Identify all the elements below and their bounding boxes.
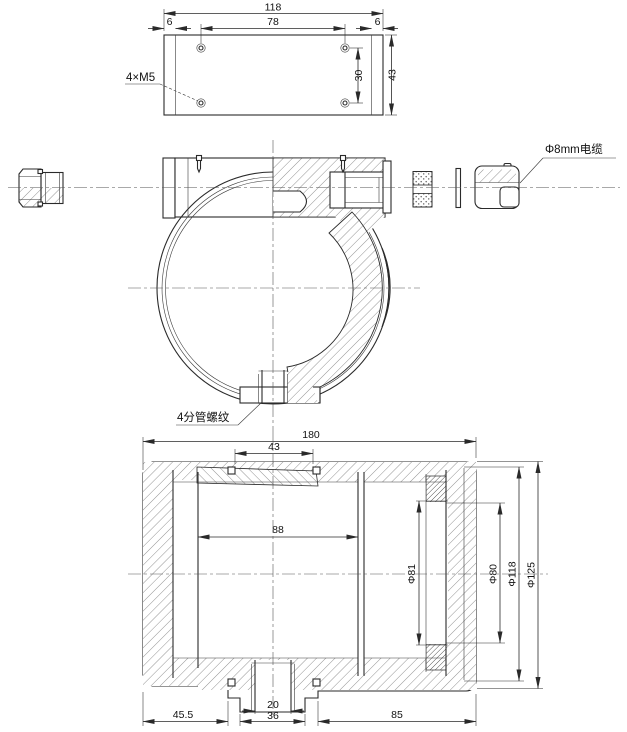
o-ring	[228, 679, 235, 686]
side-port	[382, 248, 390, 327]
gland-washer	[456, 169, 461, 208]
o-ring	[228, 467, 235, 474]
dim-hole-pitch-h: 78	[267, 16, 279, 28]
dim-edge-left: 6	[167, 16, 173, 28]
cable-entry-thread	[330, 172, 385, 208]
inner-tongue	[273, 191, 307, 212]
engineering-drawing-page: 118 78 6 6 43 30 4×M5	[0, 0, 627, 732]
flange-edge	[163, 158, 175, 218]
gland-nut	[475, 164, 519, 209]
section-wall-crescent	[287, 212, 382, 396]
front-view-housing: Φ8mm电缆 4分管螺纹	[8, 140, 620, 432]
label-cable: Φ8mm电缆	[545, 143, 603, 156]
hex-plug	[19, 169, 63, 207]
dim-dia-125: Φ125	[526, 562, 538, 588]
dim-hole-pitch-v: 30	[353, 70, 365, 82]
dim-overall-height: 43	[387, 69, 399, 81]
dim-inner-cavity: 88	[272, 524, 284, 536]
gland-seat-ring	[383, 161, 391, 213]
label-tapped-holes: 4×M5	[126, 72, 155, 84]
section-view-housing: 180 43 88 Φ81 Φ80 Φ118 Φ125 45.5	[128, 429, 548, 726]
o-ring	[313, 679, 320, 686]
top-view-mounting-plate: 118 78 6 6 43 30 4×M5	[125, 2, 399, 116]
o-ring	[313, 467, 320, 474]
dim-top-slot: 43	[268, 441, 280, 453]
dim-edge-right: 6	[375, 16, 381, 28]
label-pipe-thread: 4分管螺纹	[177, 410, 230, 424]
dim-overall-length: 180	[302, 429, 320, 441]
dim-left-step: 45.5	[173, 709, 194, 721]
dim-overall-width: 118	[265, 2, 282, 14]
drawing-canvas: 118 78 6 6 43 30 4×M5	[0, 0, 627, 732]
cable-seal	[413, 172, 432, 208]
dim-boss-width: 36	[267, 710, 279, 722]
dim-right-span: 85	[391, 709, 403, 721]
